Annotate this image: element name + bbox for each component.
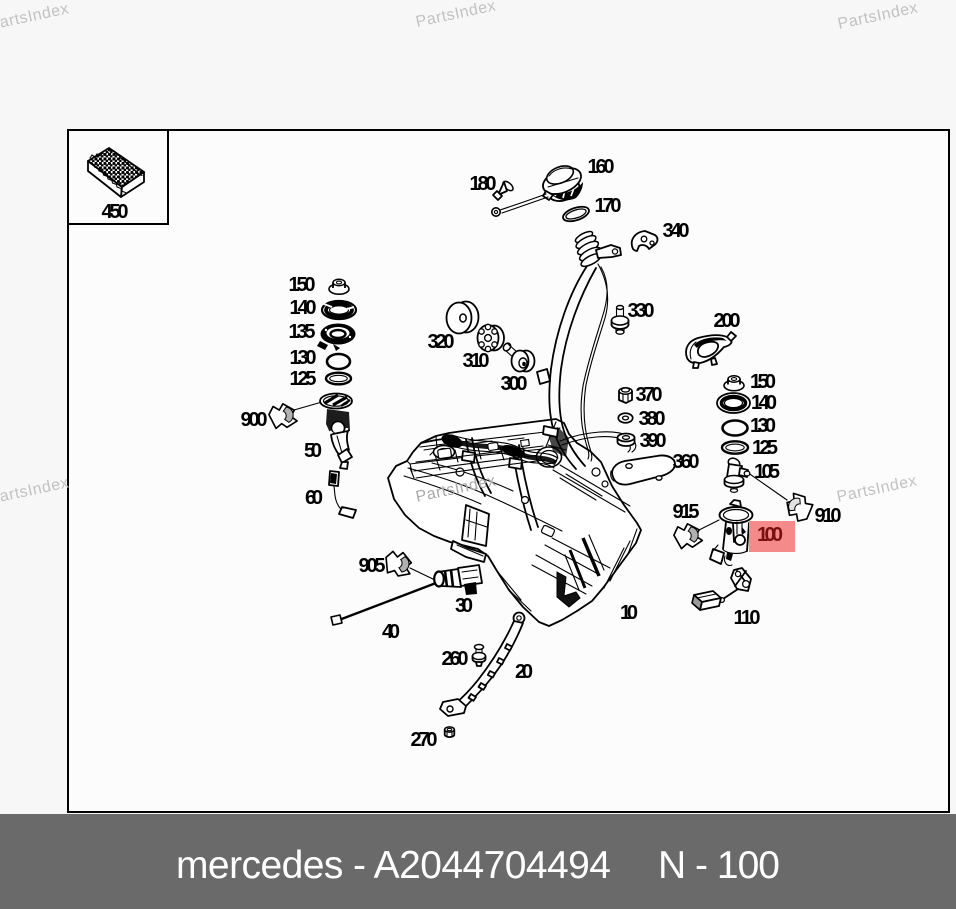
svg-text:360: 360	[673, 451, 700, 473]
svg-text:910: 910	[815, 505, 842, 527]
svg-text:310: 310	[463, 350, 490, 372]
svg-text:30: 30	[455, 595, 473, 617]
svg-text:130: 130	[750, 415, 776, 437]
svg-text:180: 180	[470, 173, 497, 195]
svg-text:105: 105	[754, 461, 780, 483]
svg-text:380: 380	[639, 408, 666, 430]
svg-text:915: 915	[673, 501, 700, 523]
svg-text:330: 330	[628, 300, 655, 322]
svg-text:140: 140	[751, 392, 777, 414]
svg-text:200: 200	[714, 310, 741, 332]
svg-text:300: 300	[501, 373, 528, 395]
svg-text:20: 20	[515, 661, 533, 683]
svg-text:60: 60	[305, 487, 323, 509]
svg-text:135: 135	[289, 321, 316, 343]
svg-text:160: 160	[588, 156, 615, 178]
svg-text:270: 270	[411, 729, 438, 751]
svg-text:905: 905	[359, 555, 386, 577]
svg-text:150: 150	[289, 274, 316, 296]
svg-text:50: 50	[304, 440, 322, 462]
svg-text:40: 40	[382, 621, 400, 643]
svg-text:100: 100	[757, 524, 783, 546]
svg-text:150: 150	[750, 371, 776, 393]
svg-text:125: 125	[752, 437, 778, 459]
svg-text:10: 10	[620, 602, 638, 624]
svg-text:140: 140	[290, 297, 317, 319]
svg-text:320: 320	[428, 331, 455, 353]
svg-text:390: 390	[640, 430, 667, 452]
svg-text:110: 110	[734, 607, 761, 629]
svg-text:N - 100: N - 100	[658, 844, 780, 887]
svg-text:340: 340	[663, 220, 690, 242]
svg-text:mercedes - A2044704494: mercedes - A2044704494	[176, 844, 611, 887]
svg-text:450: 450	[102, 201, 129, 223]
svg-text:370: 370	[636, 384, 663, 406]
svg-text:260: 260	[442, 648, 469, 670]
svg-text:130: 130	[290, 347, 317, 369]
svg-text:125: 125	[290, 368, 317, 390]
svg-text:170: 170	[595, 195, 622, 217]
svg-text:900: 900	[241, 409, 268, 431]
